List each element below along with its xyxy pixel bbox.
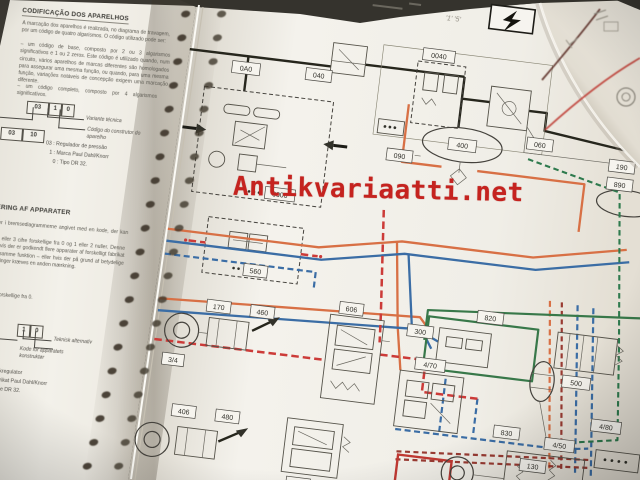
legend-item: 03 : Trykregulator [0,367,22,376]
callout-manufacturer-code: Código do construtor do aparelho [86,127,145,145]
left-page-text: CODIFICAÇÃO DOS APARELHOS A marcação dos… [0,0,219,480]
callout-variant: Variante técnica [86,115,122,124]
legend-item: 0 : Type DR 32. [0,385,21,394]
paragraph-da-3: – bestående af 4 cifre forskellige fra 0… [0,288,98,307]
heading-danish: KODIFICERING AF APPARATER [0,202,71,217]
code-box: 03 [0,127,23,142]
code-boxes-pt-2: 0310 [0,121,45,143]
callout-line [58,109,86,130]
photo-of-open-manual: 040 0040 060 0A0 0000 560 400 090 190 89… [0,0,640,480]
code-box: 10 [22,129,45,144]
legend-item: 0 : Tipo DR 32. [52,159,87,168]
callout-technical-alt: Teknisk alternativ [53,337,92,346]
callout-line [0,105,34,121]
legend-item: 1 : Fabrikat Paul Dahl/Knorr [0,376,47,387]
callout-line [0,328,18,341]
callout-constructor-code: Kode for apparatets konstruktør [19,346,82,364]
